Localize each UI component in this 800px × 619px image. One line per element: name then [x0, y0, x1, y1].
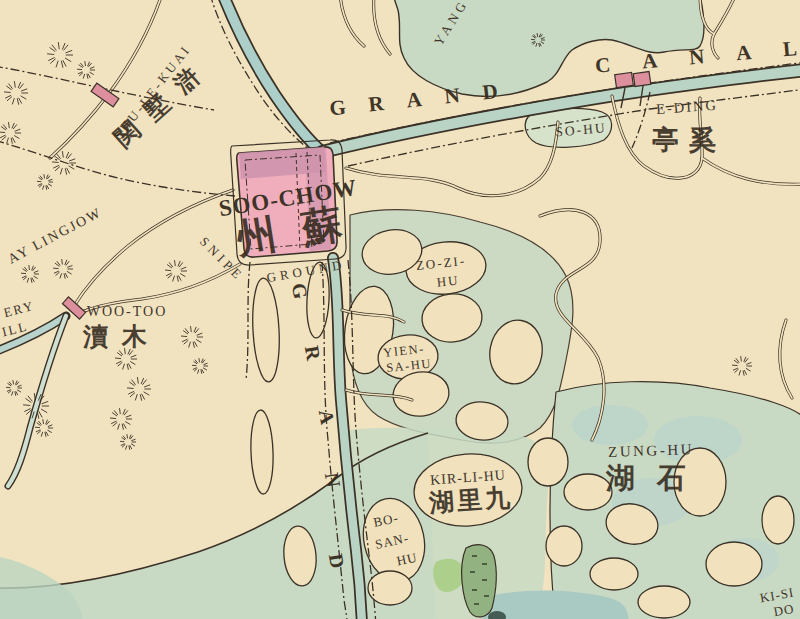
- town-marker-e-ding-east: [633, 71, 651, 86]
- city-soochow: [231, 140, 346, 265]
- map-viewport: SHU-LE-KUAI関墅滸GRANDCANALYANGSOO-CHOW州蘇SN…: [0, 0, 800, 619]
- map-artwork: [0, 0, 800, 619]
- zung-hu-blue-patch: [572, 405, 648, 445]
- town-marker-e-ding-west: [615, 72, 634, 87]
- marsh-stippled: [462, 545, 497, 617]
